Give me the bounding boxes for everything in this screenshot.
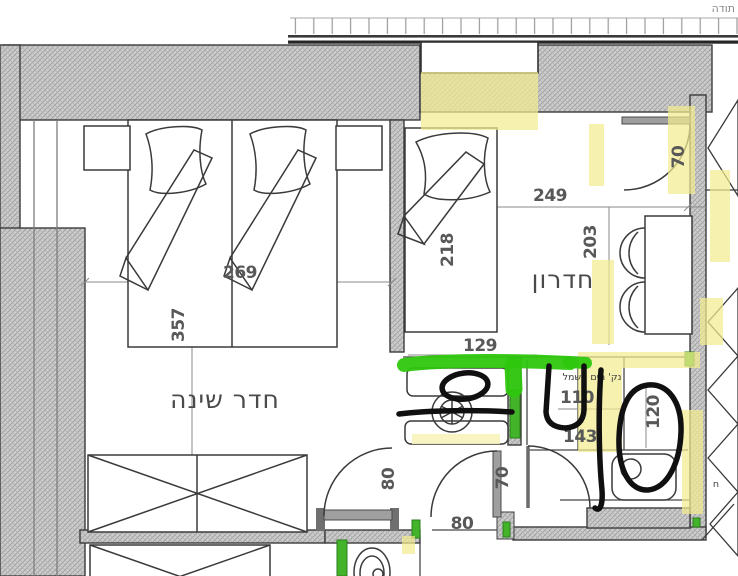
chair-2 [620, 282, 645, 332]
single-bed [398, 128, 497, 332]
dim-357: 357 [169, 308, 189, 342]
chair-1-back [629, 232, 638, 274]
dim-249: 249 [533, 186, 567, 206]
hall-door [431, 451, 501, 517]
wall-bottom-right [513, 527, 706, 540]
dim-80-bottom: 80 [451, 514, 474, 534]
twin-beds [120, 120, 337, 347]
dim-203: 203 [581, 225, 601, 259]
chair-1 [620, 228, 645, 278]
wall-bottom-right-thick [587, 508, 690, 528]
dim-110: 110 [560, 388, 595, 408]
wardrobe-2 [90, 545, 270, 576]
floor-plan-svg: תודה חדר שינה חדרון נק' מים חשמל ח 269 3… [0, 0, 738, 576]
utility-note: נק' מים חשמל [563, 372, 622, 383]
wall-left-thin [0, 45, 20, 232]
chair-2-back [629, 286, 638, 328]
dim-218: 218 [438, 233, 458, 267]
dim-120: 120 [644, 394, 664, 429]
bedroom-label: חדר שינה [170, 385, 280, 414]
desk [645, 216, 692, 334]
desk-and-chairs [620, 216, 692, 334]
dim-70-top: 70 [669, 145, 689, 168]
bed-niche-cabinet [421, 42, 538, 73]
dim-129: 129 [463, 336, 497, 356]
toilet [354, 548, 390, 576]
balcony-railing [288, 18, 738, 44]
floor-plan-screenshot: תודה חדר שינה חדרון נק' מים חשמל ח 269 3… [0, 0, 738, 576]
pale-highlight-counter [412, 434, 500, 444]
washing-machine [405, 368, 508, 444]
den-label: חדרון [532, 265, 595, 294]
shaft-mark: ח [713, 479, 719, 490]
nightstand-right [336, 126, 382, 170]
bath-door [528, 446, 590, 508]
wall-top-left [3, 45, 420, 120]
dim-269: 269 [223, 263, 257, 283]
dim-80-door: 80 [379, 467, 399, 490]
dim-70-bath: 70 [493, 466, 513, 489]
wall-left-thick [0, 228, 85, 576]
top-right-note: תודה [712, 2, 735, 15]
nightstand-left [84, 126, 130, 170]
wardrobe-1 [88, 455, 307, 532]
